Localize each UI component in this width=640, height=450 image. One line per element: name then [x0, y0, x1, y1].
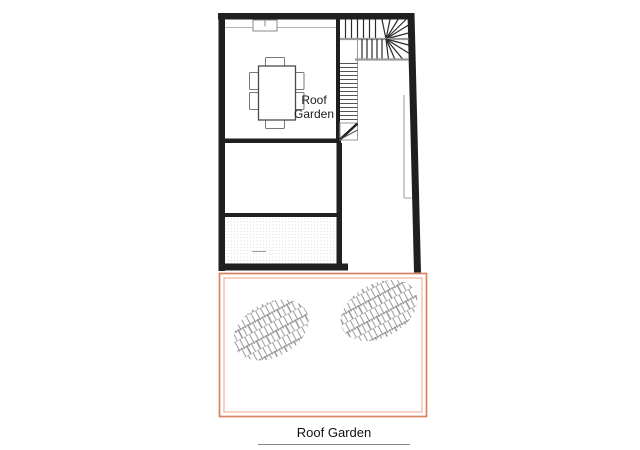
floor-plan-drawing — [0, 0, 640, 450]
floor-plan-page: Roof Garden Roof Garden — [0, 0, 640, 450]
planting-area-right — [330, 267, 428, 353]
planting-area-left — [223, 287, 319, 372]
roof-garden-room-label-line2: Garden — [294, 107, 334, 121]
staircase — [340, 20, 409, 141]
chair-left-1 — [250, 73, 259, 90]
roof-garden-room-label: Roof Garden — [278, 93, 350, 121]
roof-garden-room-label-line1: Roof — [301, 93, 326, 107]
chair-right-1 — [295, 73, 304, 90]
stippled-floor — [225, 218, 336, 264]
drawing-caption: Roof Garden — [244, 426, 424, 440]
chair-top — [266, 58, 285, 67]
vent-box — [253, 20, 277, 31]
chair-left-2 — [250, 93, 259, 110]
